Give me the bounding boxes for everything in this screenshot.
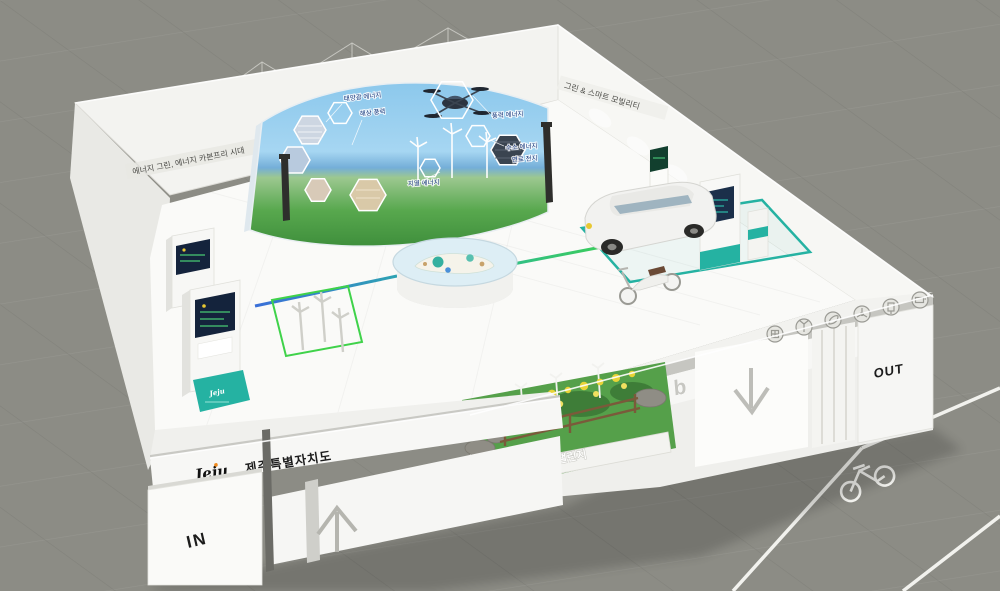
curved-led-screen: 태양광 에너지 해상 풍력 풍력 에너지 수소 에너지 연료 전지 지열 에너지 (244, 82, 548, 246)
booth-render: 에너지 그린, 에너지 카본프리 시대 그린 & 스마트 모빌리티 (0, 0, 1000, 591)
charging-station-side (748, 208, 768, 260)
car-headlight (586, 223, 592, 229)
center-table (393, 238, 517, 308)
kiosk-screen (195, 292, 235, 338)
render-canvas: 에너지 그린, 에너지 카본프리 시대 그린 & 스마트 모빌리티 (0, 0, 1000, 591)
